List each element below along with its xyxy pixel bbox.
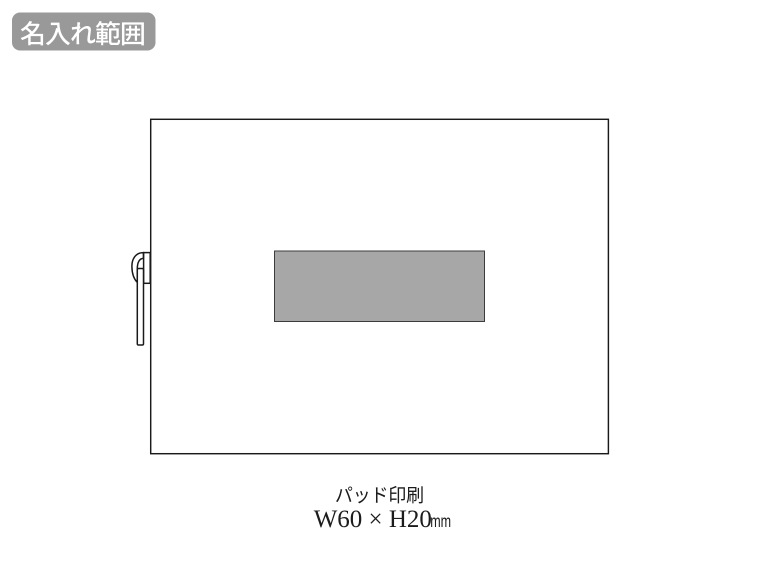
- svg-text:mm: mm: [430, 512, 451, 532]
- svg-text:W60 × H20: W60 × H20: [314, 506, 432, 533]
